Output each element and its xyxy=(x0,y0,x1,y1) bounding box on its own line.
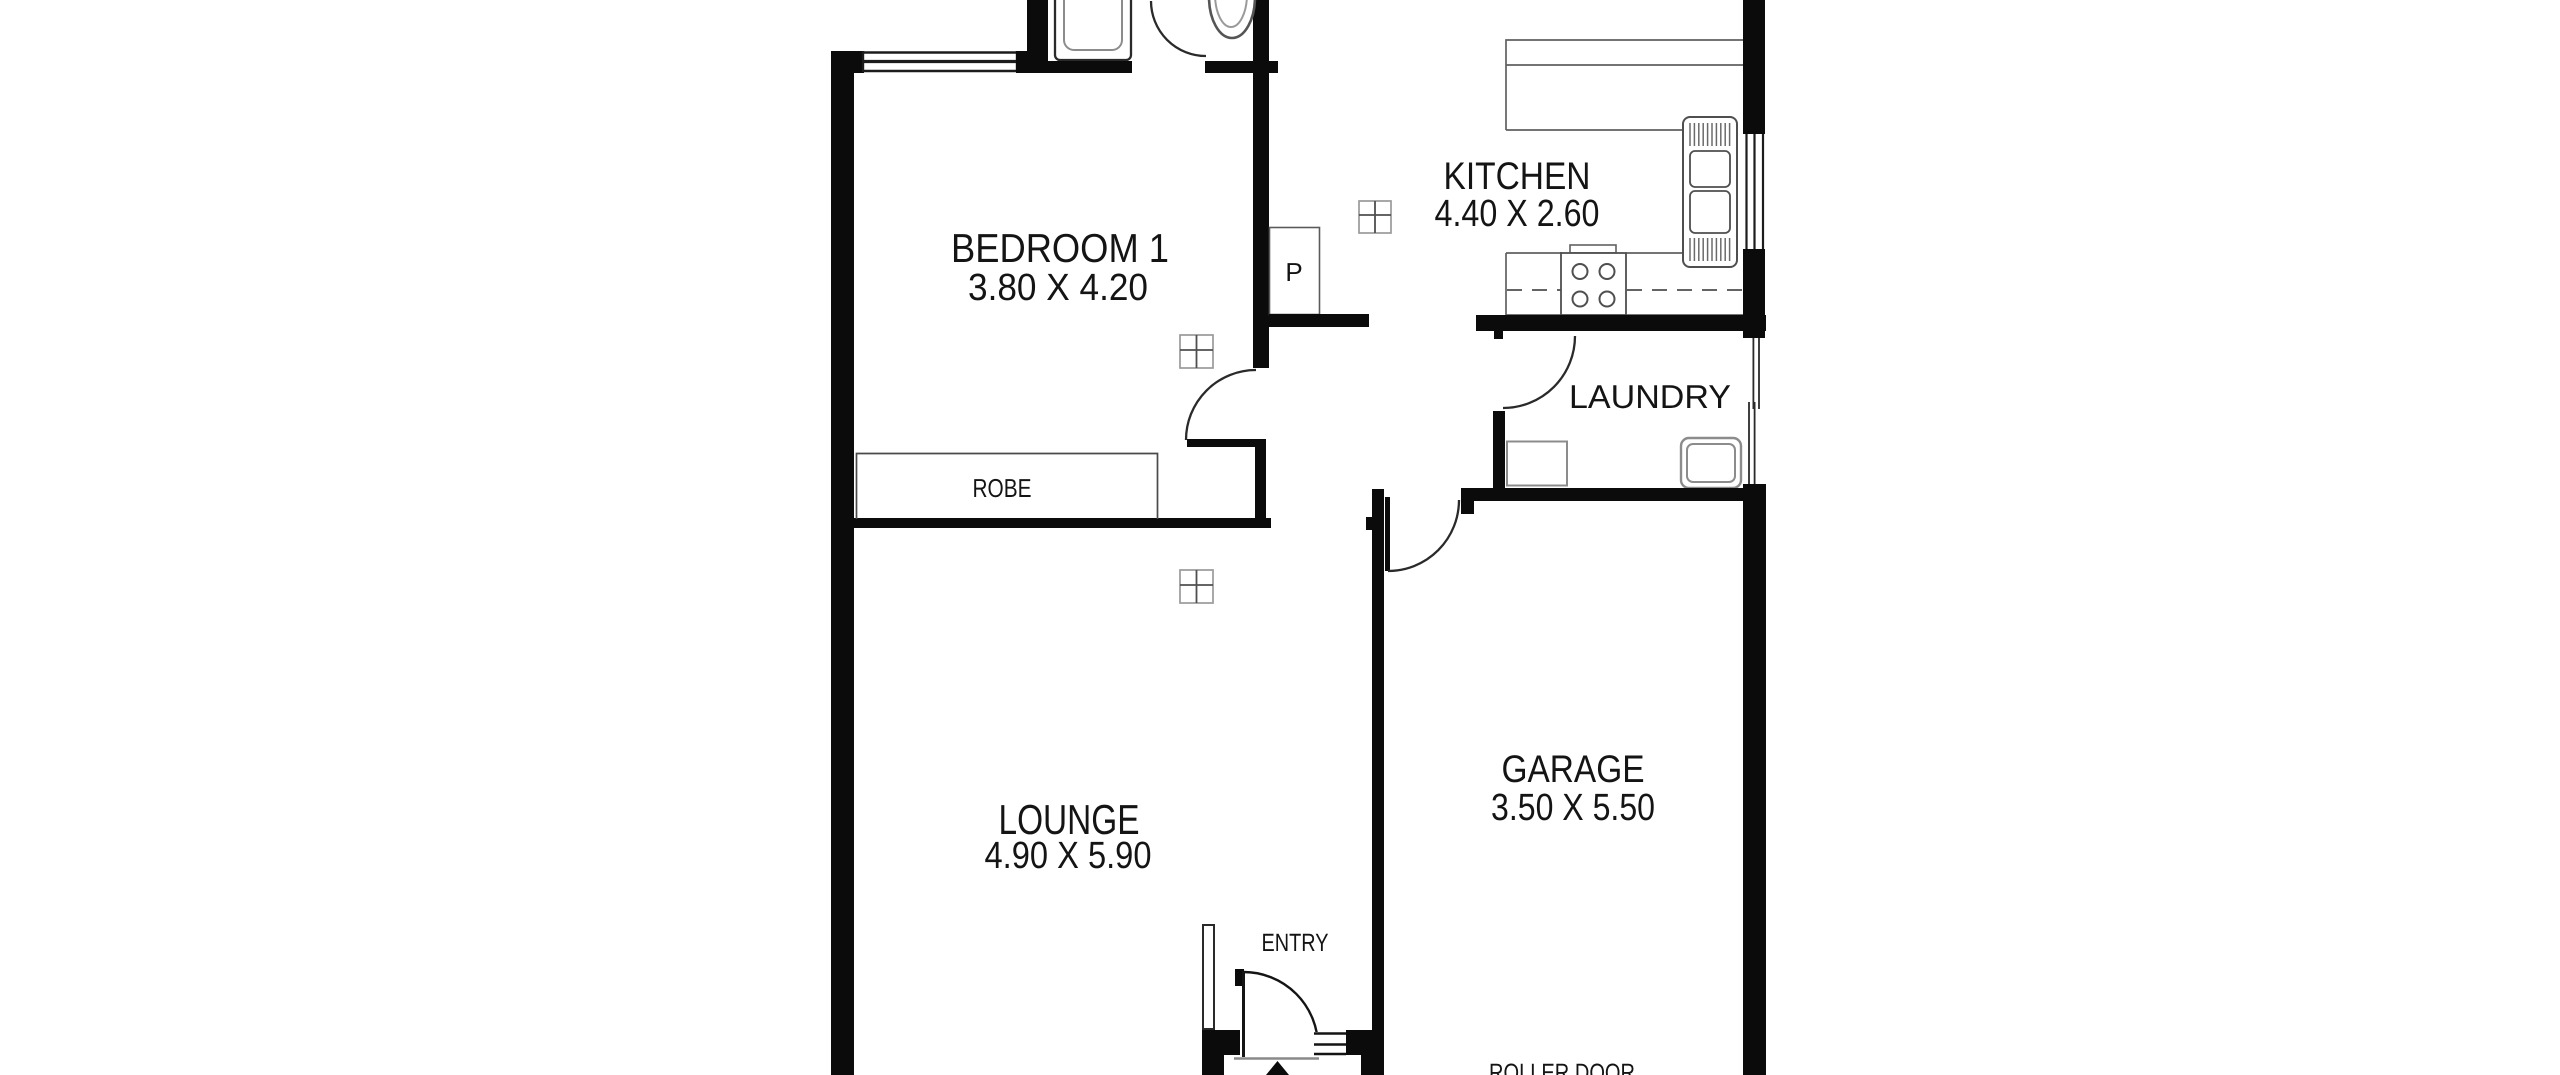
svg-text:ROLLER DOOR: ROLLER DOOR xyxy=(1489,1059,1635,1075)
svg-text:P: P xyxy=(1285,257,1302,287)
svg-text:3.80 X 4.20: 3.80 X 4.20 xyxy=(968,267,1148,309)
svg-text:BEDROOM 1: BEDROOM 1 xyxy=(951,225,1169,271)
svg-text:3.50 X 5.50: 3.50 X 5.50 xyxy=(1491,787,1655,829)
svg-text:LAUNDRY: LAUNDRY xyxy=(1569,378,1731,415)
svg-text:4.90 X 5.90: 4.90 X 5.90 xyxy=(985,835,1152,877)
svg-text:4.40 X 2.60: 4.40 X 2.60 xyxy=(1435,193,1600,235)
svg-text:ENTRY: ENTRY xyxy=(1262,929,1329,957)
svg-text:ROBE: ROBE xyxy=(973,473,1032,503)
svg-text:KITCHEN: KITCHEN xyxy=(1444,155,1591,198)
svg-text:GARAGE: GARAGE xyxy=(1502,748,1645,791)
